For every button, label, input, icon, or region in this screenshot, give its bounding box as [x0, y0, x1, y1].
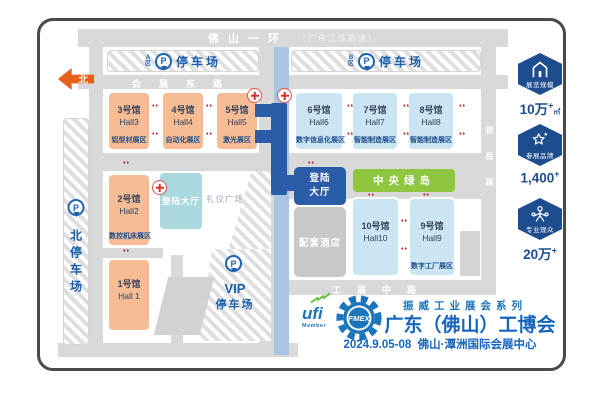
stat-badge-visitors: 专业观众: [518, 198, 562, 240]
footer-date-venue: 2024.9.05-08 佛山·潭洲国际会展中心: [320, 336, 560, 352]
stat-brands-label: 参展品牌: [526, 150, 554, 160]
hall-3-zone: 铝型材展区: [109, 135, 149, 145]
hall-10: 10号馆 Hall10: [351, 197, 400, 277]
fmex-wordmark: FMEX: [348, 314, 370, 323]
plaza-hatch-upper: [228, 171, 271, 251]
gate-marker-icon: [459, 104, 466, 109]
north-parking-label: 北停车场: [68, 229, 85, 297]
gate-marker-icon: [347, 132, 354, 137]
ring-road-sublabel: （广佛江珠高速）: [298, 33, 378, 44]
hall-4-zone: 自动化展区: [163, 135, 203, 145]
ufi-logo: ufi Member: [300, 297, 334, 337]
gate-marker-icon: [206, 132, 213, 137]
hall-5-number: 5号馆: [225, 105, 248, 116]
hall-3-number: 3号馆: [117, 105, 140, 116]
hall-9-en: Hall9: [422, 233, 441, 243]
parking-a-zone-char: 区: [145, 61, 151, 67]
ufi-member-label: Member: [302, 323, 326, 329]
hall-8-number: 8号馆: [419, 105, 442, 116]
ring-road-label: 佛山一环: [208, 30, 288, 46]
parking-b-pin-icon: P: [358, 53, 375, 70]
hall-2-zone: 数控机床展区: [109, 231, 149, 241]
hall-6-zone: 数字信息化展区: [296, 135, 342, 145]
gate-marker-icon: [368, 193, 375, 198]
ceremony-plaza-label: 礼仪广场: [206, 193, 244, 205]
hall-2-en: Hall2: [119, 206, 138, 216]
stat-visitors-label: 专业观众: [526, 224, 554, 234]
gate-marker-icon: [152, 132, 159, 137]
brands-icon: [530, 131, 550, 149]
parking-a-strip: A区 P 停车场: [107, 50, 259, 72]
central-green-island: 中央绿岛: [353, 169, 455, 192]
gate-marker-icon: [401, 247, 408, 252]
hall-10-en: Hall10: [363, 233, 387, 243]
hall-8-en: Hall8: [421, 117, 440, 127]
ufi-wordmark: ufi: [302, 305, 323, 322]
entry-hall-east: 登陆 大厅: [294, 167, 346, 205]
medical-cross-icon: [247, 88, 262, 103]
hall-5-en: Hall5: [227, 117, 246, 127]
hall-4-number: 4号馆: [171, 105, 194, 116]
stat-scale-label: 展览规模: [526, 79, 554, 89]
stat-badge-scale: 展览规模: [518, 53, 562, 95]
parking-b-zone-letter: B: [349, 55, 353, 61]
gate-marker-icon: [206, 104, 213, 109]
hall-3: 3号馆 Hall3 铝型材展区: [107, 91, 151, 151]
parking-a-zone-letter: A: [146, 55, 150, 61]
stat-visitors-value: 20万+: [508, 243, 566, 263]
footer-date: 2024.9.05-08: [343, 339, 411, 351]
gate-marker-icon: [308, 161, 315, 166]
gate-marker-icon: [123, 249, 130, 254]
hall-1-number: 1号馆: [117, 279, 140, 290]
right-road-label: 荷岳路: [484, 126, 495, 204]
gate-marker-icon: [152, 104, 159, 109]
vip-parking-label: 停车场: [199, 296, 271, 312]
hall-6-number: 6号馆: [307, 105, 330, 116]
medical-cross-icon: [277, 88, 292, 103]
expo-map: 佛山一环 （广佛江珠高速） 会展东路 工展路 荷岳路 工展中路 A区 P 停车场…: [0, 0, 600, 404]
hall-4-en: Hall4: [173, 117, 192, 127]
medical-cross-icon: [152, 180, 167, 195]
hall-7: 7号馆 Hall7 智能制造展区: [351, 91, 399, 151]
hall-1-en: Hall 1: [118, 291, 140, 301]
ring-road: 佛山一环 （广佛江珠高速）: [78, 29, 508, 47]
gate-marker-icon: [423, 193, 430, 198]
hall-8: 8号馆 Hall8 智能制造展区: [407, 91, 455, 151]
parking-b-strip: B区 P 停车场: [291, 50, 481, 72]
entry-hall-east-line1: 登陆: [309, 172, 330, 186]
hall-2-number: 2号馆: [117, 194, 140, 205]
gate-marker-icon: [403, 104, 410, 109]
parking-a-label: 停车场: [176, 53, 221, 70]
parking-b-zone-char: 区: [348, 61, 354, 67]
hall-7-zone: 智能制造展区: [353, 135, 397, 145]
vip-parking-pin-icon: P: [225, 255, 242, 272]
hall-6: 6号馆 Hall6 数字信息化展区: [294, 91, 344, 151]
parking-b-label: 停车场: [379, 53, 424, 70]
gate-marker-icon: [403, 132, 410, 137]
hall-1: 1号馆 Hall 1: [107, 258, 151, 332]
hall-6-en: Hall6: [309, 117, 328, 127]
hall-9-zone: 数字工厂展区: [410, 261, 454, 271]
north-parking-strip: P 北停车场: [63, 118, 89, 345]
hall-2: 2号馆 Hall2 数控机床展区: [107, 173, 151, 247]
hall-3-en: Hall3: [119, 117, 138, 127]
map-card: 佛山一环 （广佛江珠高速） 会展东路 工展路 荷岳路 工展中路 A区 P 停车场…: [37, 18, 566, 371]
footer-venue: 佛山·潭洲国际会展中心: [418, 339, 537, 351]
entry-hall-west: 登陆大厅: [160, 173, 202, 229]
exhibition-scale-icon: [530, 60, 550, 78]
hall-8-zone: 智能制造展区: [409, 135, 453, 145]
entry-hall-east-line2: 大厅: [309, 186, 330, 200]
stat-brands-value: 1,400+: [508, 169, 566, 186]
hall-4: 4号馆 Hall4 自动化展区: [161, 91, 205, 151]
gate-marker-icon: [459, 132, 466, 137]
hotel: 配套酒店: [294, 207, 346, 277]
north-parking-pin-icon: P: [68, 199, 85, 216]
service-block: [460, 231, 480, 276]
stat-badge-brands: 参展品牌: [518, 124, 562, 166]
footer-title: 广东（佛山）工博会: [377, 310, 563, 337]
hall-5-zone: 激光展区: [217, 135, 257, 145]
visitors-icon: [529, 205, 551, 223]
gate-marker-icon: [123, 161, 130, 166]
gate-marker-icon: [347, 104, 354, 109]
gate-marker-icon: [401, 219, 408, 224]
west-vertical-road: [89, 47, 103, 357]
parking-a-pin-icon: P: [155, 53, 172, 70]
south-road: [58, 343, 298, 357]
hall-7-number: 7号馆: [363, 105, 386, 116]
hall-9: 9号馆 Hall9 数字工厂展区: [408, 197, 456, 277]
mid-left-road: [89, 153, 259, 171]
hall-9-number: 9号馆: [420, 221, 443, 232]
stat-scale-value: 10万+㎡: [508, 98, 566, 118]
hall-7-en: Hall7: [365, 117, 384, 127]
hall-10-number: 10号馆: [361, 221, 389, 232]
vip-parking-name: VIP: [199, 281, 271, 296]
east-road-label: 会展东路: [132, 77, 240, 90]
